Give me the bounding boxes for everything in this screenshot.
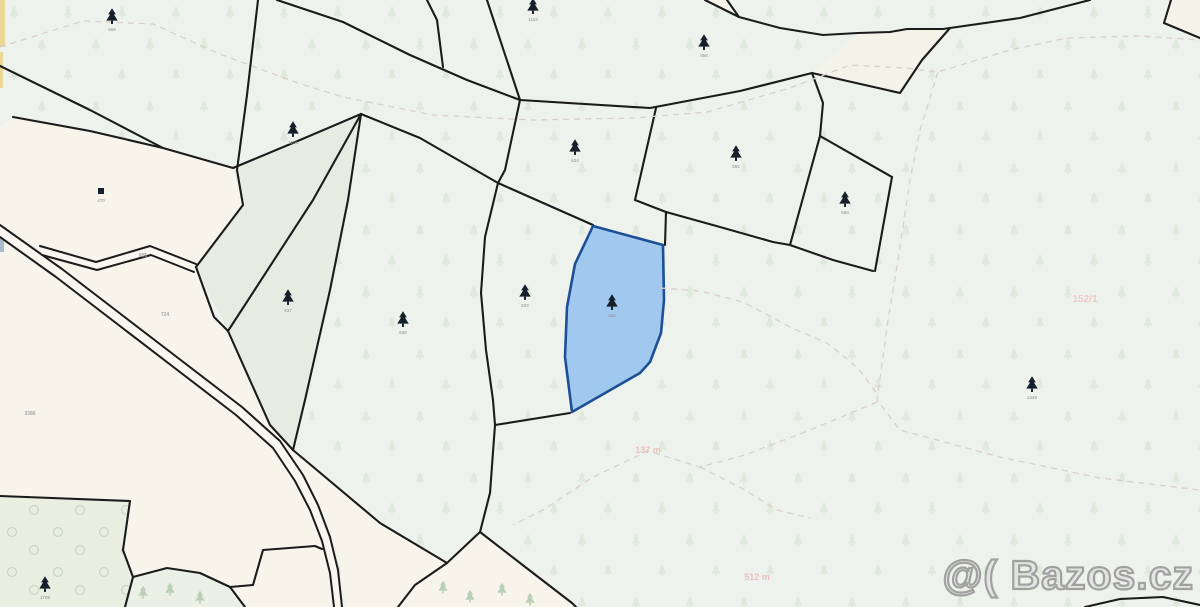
symbol-number-label: 470	[97, 198, 105, 203]
tree-number-label: 637	[284, 308, 292, 313]
yellow-road-strip-b	[0, 52, 3, 88]
cadastral-map-image[interactable]: 6591106110463465665565863763663363213481…	[0, 0, 1200, 607]
boundary-blue-east-top	[665, 212, 666, 245]
tree-number-label: 1709	[40, 595, 51, 600]
tree-number-label: 1104	[528, 17, 538, 22]
tree-number-label: 659	[108, 27, 116, 32]
tree-number-label: 632	[608, 313, 616, 318]
distance-label-512m: 512 m	[744, 572, 770, 582]
yellow-road-strip-a	[0, 0, 5, 47]
tree-number-label: 658	[841, 210, 849, 215]
road-number-805: 805	[139, 253, 148, 259]
cadastral-map: 6591106110463465665565863763663363213481…	[0, 0, 1200, 607]
parcel-number-pink: 152/1	[1072, 294, 1097, 305]
tree-number-label: 636	[399, 330, 407, 335]
parcel-number-3386: 3386	[24, 411, 35, 417]
distance-label-137m: 137 m	[635, 445, 661, 455]
tree-number-label: 655	[732, 164, 740, 169]
tree-number-label: 1348	[1027, 395, 1038, 400]
square-symbol-icon	[98, 188, 104, 194]
tree-number-label: 633	[521, 303, 529, 308]
tree-number-label: 1106	[288, 140, 298, 145]
parcel-number-724: 724	[161, 312, 170, 318]
tree-number-label: 656	[700, 53, 708, 58]
tree-number-label: 634	[571, 158, 579, 163]
parcel-green-deciduous-pattern	[0, 496, 133, 607]
